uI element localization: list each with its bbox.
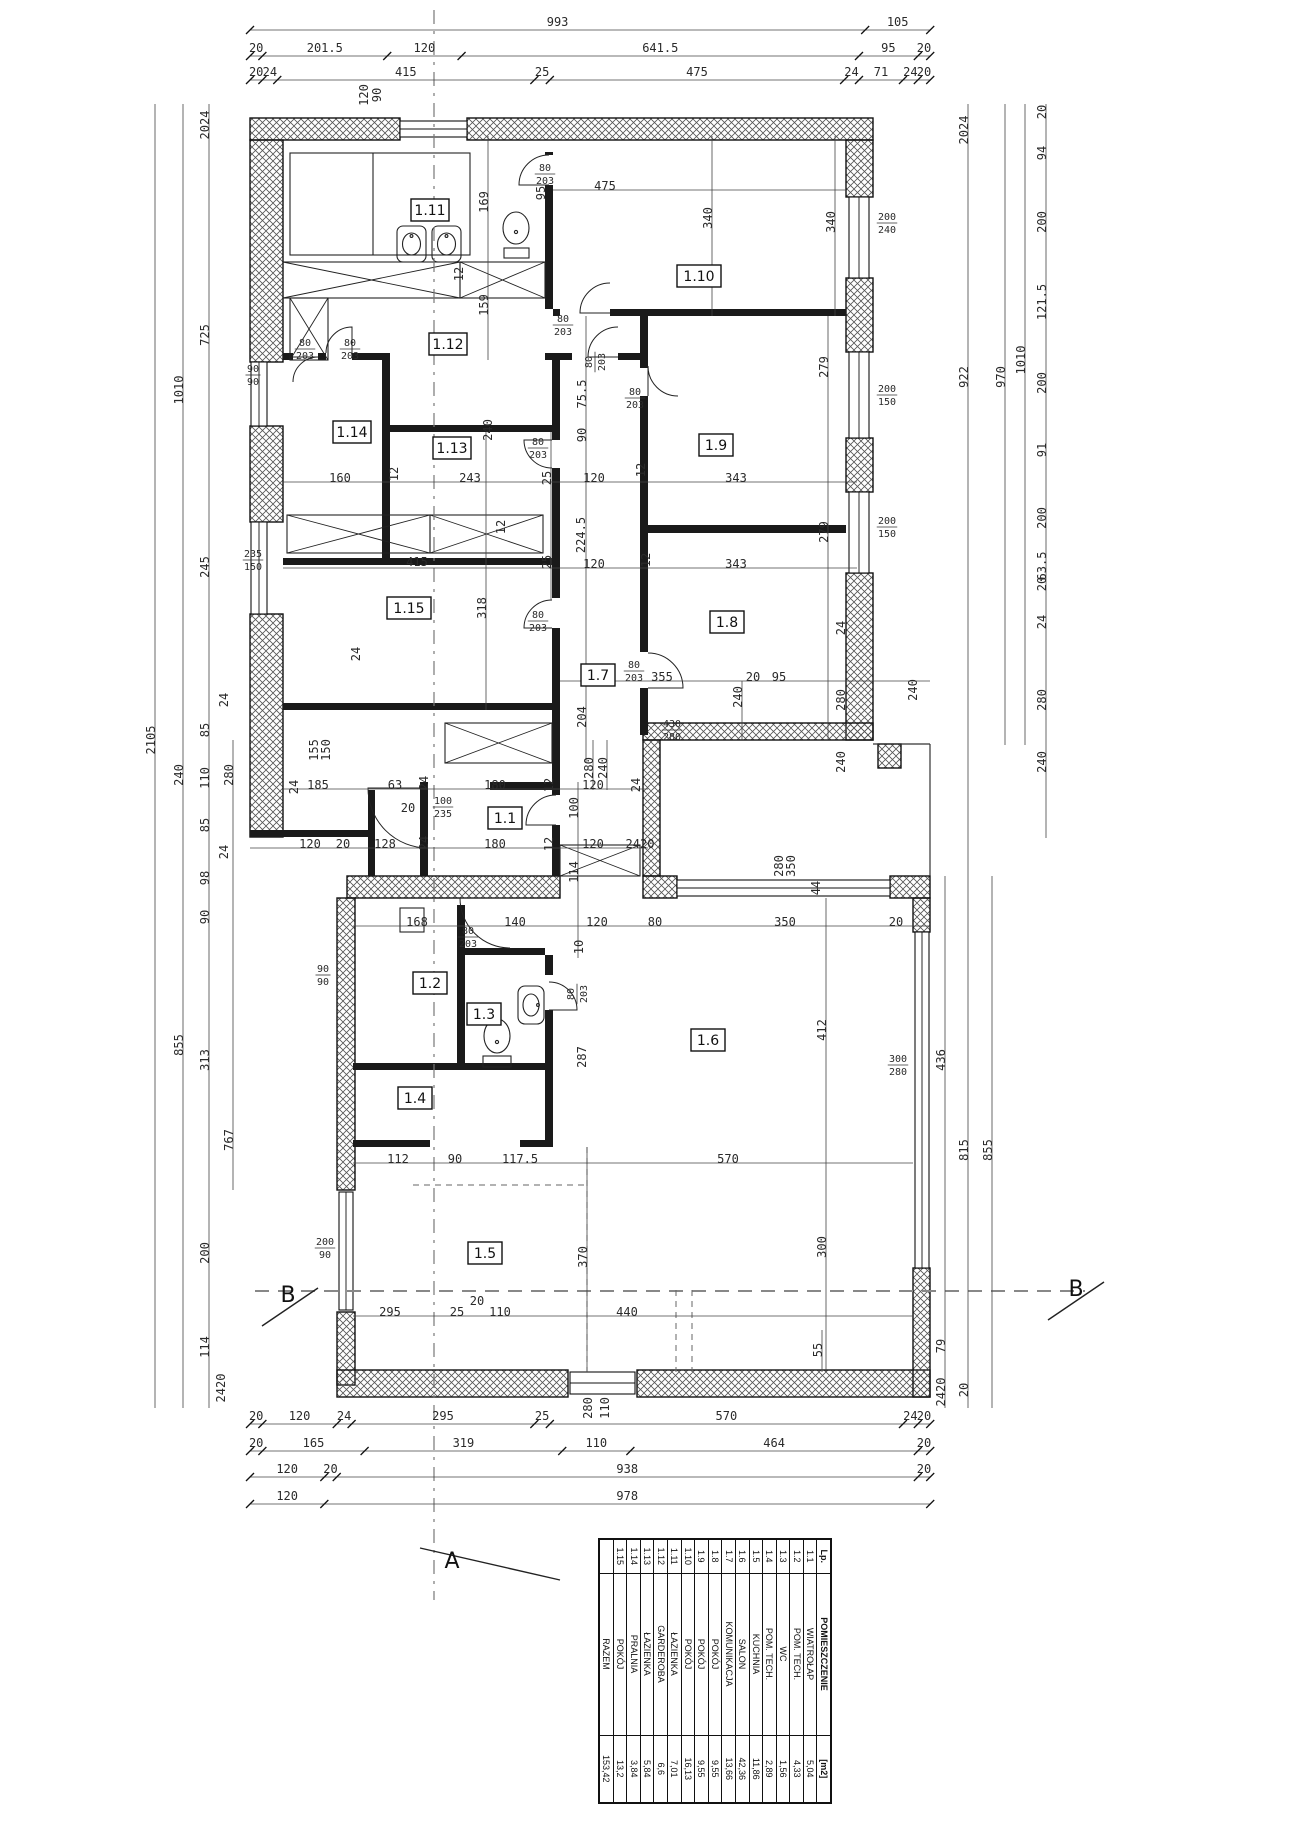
dim-text: 90 xyxy=(575,428,589,442)
exterior-wall xyxy=(643,876,677,898)
dim-text: 90 xyxy=(198,910,212,924)
svg-text:150: 150 xyxy=(244,562,262,573)
schedule-cell: 1.12 xyxy=(654,1539,668,1573)
svg-text:1.2: 1.2 xyxy=(419,976,441,992)
dim-text: 120 xyxy=(276,1462,298,1476)
exterior-wall xyxy=(913,898,930,932)
svg-text:1.13: 1.13 xyxy=(436,441,467,457)
exterior-wall xyxy=(250,426,283,522)
wardrobe-box xyxy=(287,515,430,553)
schedule-cell: ŁAZIENKA xyxy=(640,1573,654,1735)
svg-text:280: 280 xyxy=(889,1067,907,1078)
window-icon xyxy=(339,1192,353,1310)
svg-text:1.14: 1.14 xyxy=(336,425,367,441)
dim-text: 343 xyxy=(725,471,747,485)
svg-text:280: 280 xyxy=(663,732,681,743)
section-markers: ABB xyxy=(262,1277,1104,1580)
exterior-wall xyxy=(890,876,930,898)
schedule-cell: POM. TECH. xyxy=(763,1573,777,1735)
dim-text: 63.5 xyxy=(1035,552,1049,581)
dim-text: 24 xyxy=(903,1409,917,1423)
dim-text: 343 xyxy=(725,557,747,571)
dim-text: 280 xyxy=(581,1397,595,1419)
interior-wall xyxy=(353,1140,430,1147)
schedule-cell: 7,01 xyxy=(668,1735,682,1803)
schedule-cell: 153,42 xyxy=(599,1735,613,1803)
svg-text:203: 203 xyxy=(529,623,547,634)
dim-text: 121.5 xyxy=(1035,284,1049,320)
svg-text:80: 80 xyxy=(557,314,569,325)
schedule-cell: 1.2 xyxy=(790,1539,804,1573)
section-marker-b: B xyxy=(262,1283,318,1326)
svg-text:80: 80 xyxy=(344,338,356,349)
dim-text: 200 xyxy=(1035,507,1049,529)
schedule-cell: 1.11 xyxy=(668,1539,682,1573)
dim-text: 169 xyxy=(477,191,491,213)
window-icon xyxy=(849,492,869,573)
dim-text: 280 xyxy=(582,757,596,779)
interior-wall xyxy=(283,703,560,710)
window-icon xyxy=(849,197,869,278)
svg-text:1.5: 1.5 xyxy=(474,1246,496,1262)
svg-text:203: 203 xyxy=(459,939,477,950)
exterior-wall xyxy=(337,898,355,1190)
interior-wall xyxy=(545,1063,553,1147)
dim-text: 63 xyxy=(388,778,402,792)
schedule-cell: 1.5 xyxy=(749,1539,763,1573)
dim-text: 570 xyxy=(716,1409,738,1423)
dim-text: 117.5 xyxy=(502,1152,538,1166)
dim-text: 20 xyxy=(470,1294,484,1308)
dim-text: 2024 xyxy=(957,116,971,145)
dim-text: 20 xyxy=(917,1462,931,1476)
dim-text: 105 xyxy=(887,15,909,29)
dim-text: 287 xyxy=(575,1046,589,1068)
svg-text:1.3: 1.3 xyxy=(473,1007,495,1023)
room-label-1.3: 1.3 xyxy=(467,1003,501,1025)
schedule-cell: GARDEROBA xyxy=(654,1573,668,1735)
interior-wall xyxy=(250,830,375,837)
room-schedule-table: Lp.POMIESZCZENIE[m2]1.1WIATROŁAP5,041.2P… xyxy=(598,1538,832,1802)
dim-text: 280 xyxy=(834,689,848,711)
size-fraction-label: 80203 xyxy=(528,437,549,461)
dim-text: 85 xyxy=(198,723,212,737)
svg-text:150: 150 xyxy=(878,529,896,540)
dim-text: 20 xyxy=(323,1462,337,1476)
room-label-1.9: 1.9 xyxy=(699,434,733,456)
size-fraction-label: 80203 xyxy=(340,338,361,362)
svg-text:1.10: 1.10 xyxy=(683,269,714,285)
room-label-1.2: 1.2 xyxy=(413,972,447,994)
dim-text: 85 xyxy=(198,818,212,832)
exterior-wall xyxy=(846,140,873,197)
svg-text:203: 203 xyxy=(296,351,314,362)
dim-text: 641.5 xyxy=(642,41,678,55)
dim-text: 279 xyxy=(817,356,831,378)
svg-text:203: 203 xyxy=(536,176,554,187)
schedule-cell: WC xyxy=(776,1573,790,1735)
size-fraction-label: 80203 xyxy=(528,610,549,634)
svg-text:200: 200 xyxy=(316,1237,334,1248)
dim-text: 110 xyxy=(489,1305,511,1319)
dim-text: 240 xyxy=(906,679,920,701)
dim-text: 94 xyxy=(1035,146,1049,160)
dim-text: 2024 xyxy=(198,111,212,140)
dim-text: 24 xyxy=(287,780,301,794)
svg-text:1.9: 1.9 xyxy=(705,438,727,454)
door-arc xyxy=(648,366,678,396)
dim-text: 20 xyxy=(249,1409,263,1423)
room-label-1.10: 1.10 xyxy=(677,265,721,287)
svg-text:100: 100 xyxy=(434,796,452,807)
schedule-cell: 11,86 xyxy=(749,1735,763,1803)
dim-text: 91 xyxy=(1035,443,1049,457)
dim-text: 24 xyxy=(217,845,231,859)
dim-text: 128 xyxy=(374,837,396,851)
dim-text: 922 xyxy=(957,366,971,388)
interior-wall xyxy=(640,316,648,368)
dim-text: 240 xyxy=(481,419,495,441)
size-fraction-label: 20090 xyxy=(315,1237,336,1261)
svg-text:203: 203 xyxy=(626,400,644,411)
dim-text: 90 xyxy=(448,1152,462,1166)
schedule-cell: 9,55 xyxy=(708,1735,722,1803)
schedule-cell: 1.14 xyxy=(627,1539,641,1573)
wardrobe-box xyxy=(445,723,552,763)
dim-text: 2420 xyxy=(934,1378,948,1407)
door-arc xyxy=(580,283,610,313)
schedule-header-cell: POMIESZCZENIE xyxy=(817,1573,831,1735)
dim-text: 570 xyxy=(717,1152,739,1166)
dim-text: 110 xyxy=(598,1397,612,1419)
dim-text: 415 xyxy=(395,65,417,79)
dim-text: 24 xyxy=(263,65,277,79)
dim-text: 20 xyxy=(957,1383,971,1397)
dim-text: 20 xyxy=(917,65,931,79)
dim-text: 114 xyxy=(567,861,581,883)
dim-text: 280 xyxy=(222,764,236,786)
dim-text: 340 xyxy=(701,207,715,229)
dim-text: 2420 xyxy=(214,1374,228,1403)
dim-text: 25 xyxy=(535,1409,549,1423)
svg-text:203: 203 xyxy=(579,985,590,1003)
svg-text:200: 200 xyxy=(878,384,896,395)
dim-text: 75.5 xyxy=(575,380,589,409)
dim-text: 355 xyxy=(651,670,673,684)
room-label-1.14: 1.14 xyxy=(333,421,371,443)
dim-text: 295 xyxy=(432,1409,454,1423)
schedule-cell: 1.6 xyxy=(735,1539,749,1573)
exterior-wall xyxy=(643,740,660,876)
dim-text: 120 xyxy=(582,837,604,851)
room-label-1.8: 1.8 xyxy=(710,611,744,633)
dim-text: 25 xyxy=(535,65,549,79)
dim-text: 20 xyxy=(1035,577,1049,591)
dim-text: 295 xyxy=(379,1305,401,1319)
room-label-1.4: 1.4 xyxy=(398,1087,432,1109)
dim-text: 24 xyxy=(834,621,848,635)
interior-wall xyxy=(552,628,560,710)
dim-text: 855 xyxy=(172,1034,186,1056)
dim-text: 180 xyxy=(484,778,506,792)
dim-text: 464 xyxy=(763,1436,785,1450)
svg-text:1.6: 1.6 xyxy=(697,1033,719,1049)
svg-text:B: B xyxy=(280,1283,295,1308)
schedule-cell: 1.4 xyxy=(763,1539,777,1573)
dim-text: 20 xyxy=(917,1436,931,1450)
size-fraction-label: 9090 xyxy=(316,964,331,988)
dim-text: 79 xyxy=(934,1339,948,1353)
exterior-wall xyxy=(637,1370,930,1397)
dim-text: 20 xyxy=(746,670,760,684)
exterior-wall xyxy=(250,614,283,837)
schedule-cell: 1.10 xyxy=(681,1539,695,1573)
dim-text: 20 xyxy=(401,801,415,815)
dim-text: 95 xyxy=(772,670,786,684)
dim-text: 1010 xyxy=(172,376,186,405)
schedule-cell: 3,84 xyxy=(627,1735,641,1803)
room-label-1.5: 1.5 xyxy=(468,1242,502,1264)
schedule-cell: POM. TECH. xyxy=(790,1573,804,1735)
dim-text: 855 xyxy=(981,1139,995,1161)
schedule-header-cell: [m2] xyxy=(817,1735,831,1803)
schedule-cell: 1.9 xyxy=(695,1539,709,1573)
size-fraction-label: 80203 xyxy=(566,984,590,1005)
size-fraction-label: 80203 xyxy=(535,163,556,187)
schedule-cell: 5,84 xyxy=(640,1735,654,1803)
dim-text: 24 xyxy=(217,693,231,707)
dim-text: 2420 xyxy=(626,837,655,851)
window-icon xyxy=(915,932,929,1268)
schedule-cell: 13,2 xyxy=(613,1735,627,1803)
dim-text: 725 xyxy=(198,324,212,346)
section-lines xyxy=(255,10,1085,1600)
door-arc xyxy=(588,327,618,357)
dim-text: 120 xyxy=(583,557,605,571)
exterior-wall xyxy=(337,1370,568,1397)
dim-text: 24 xyxy=(629,778,643,792)
room-label-1.15: 1.15 xyxy=(387,597,431,619)
dim-text: 475 xyxy=(686,65,708,79)
dim-text: 20 xyxy=(917,1409,931,1423)
dim-text: 12 xyxy=(639,553,653,567)
toilet-icon xyxy=(503,212,529,258)
dim-text: 185 xyxy=(307,778,329,792)
room-label-1.1: 1.1 xyxy=(488,807,522,829)
exterior-wall xyxy=(846,573,873,740)
dim-text: 767 xyxy=(222,1129,236,1151)
svg-text:80: 80 xyxy=(539,163,551,174)
interior-wall xyxy=(552,360,560,440)
dim-text: 150 xyxy=(319,739,333,761)
schedule-cell: 42,36 xyxy=(735,1735,749,1803)
dim-text: 243 xyxy=(459,471,481,485)
interior-wall xyxy=(283,353,293,360)
size-fraction-label: 80203 xyxy=(295,338,316,362)
svg-text:B: B xyxy=(1068,1277,1083,1302)
schedule-cell: POKÓJ xyxy=(681,1573,695,1735)
dim-text: 120 xyxy=(276,1489,298,1503)
dim-text: 95 xyxy=(881,41,895,55)
schedule-cell: 16,13 xyxy=(681,1735,695,1803)
dim-text: 165 xyxy=(303,1436,325,1450)
schedule-cell: 1.3 xyxy=(776,1539,790,1573)
dim-text: 80 xyxy=(648,915,662,929)
schedule-cell: 1.13 xyxy=(640,1539,654,1573)
exterior-wall xyxy=(846,438,873,492)
dim-text: 370 xyxy=(576,1246,590,1268)
schedule-cell: PRALNIA xyxy=(627,1573,641,1735)
schedule-cell: 1.8 xyxy=(708,1539,722,1573)
sink-icon xyxy=(397,226,426,262)
schedule-cell: POKÓJ xyxy=(695,1573,709,1735)
svg-text:90: 90 xyxy=(317,964,329,975)
floorplan-sheet: 99310520201.5120641.59520202441525475247… xyxy=(0,0,1305,1821)
dim-text: 240 xyxy=(1035,751,1049,773)
svg-text:203: 203 xyxy=(625,673,643,684)
schedule-cell: 5,04 xyxy=(803,1735,817,1803)
dim-text: 120 xyxy=(414,41,436,55)
svg-text:203: 203 xyxy=(554,327,572,338)
interior-wall xyxy=(382,360,390,558)
svg-text:80: 80 xyxy=(532,437,544,448)
svg-text:80: 80 xyxy=(628,660,640,671)
size-fraction-label: 100235 xyxy=(433,796,454,820)
svg-text:235: 235 xyxy=(434,809,452,820)
dim-text: 25 xyxy=(540,555,554,569)
dim-text: 168 xyxy=(406,915,428,929)
schedule-cell xyxy=(599,1539,613,1573)
svg-text:300: 300 xyxy=(889,1054,907,1065)
interior-wall xyxy=(520,1140,545,1147)
dim-text: 280 xyxy=(772,855,786,877)
size-fraction-label: 80203 xyxy=(553,314,574,338)
svg-text:90: 90 xyxy=(247,364,259,375)
kitchen-layout-dashes xyxy=(413,1147,692,1372)
svg-text:80: 80 xyxy=(566,988,577,1000)
svg-text:200: 200 xyxy=(878,212,896,223)
schedule-cell: 1.15 xyxy=(613,1539,627,1573)
svg-text:A: A xyxy=(444,1549,459,1574)
dim-text: 98 xyxy=(198,871,212,885)
sink-icon xyxy=(518,986,544,1024)
schedule-cell: 6,6 xyxy=(654,1735,668,1803)
size-fraction-label: 200240 xyxy=(877,212,898,236)
dimension-lines xyxy=(155,104,1046,1408)
dim-text: 350 xyxy=(774,915,796,929)
dim-text: 24 xyxy=(844,65,858,79)
room-label-1.13: 1.13 xyxy=(433,437,471,459)
interior-wall xyxy=(640,396,648,652)
svg-text:203: 203 xyxy=(597,353,608,371)
sink-icon xyxy=(432,226,461,262)
svg-text:90: 90 xyxy=(319,1250,331,1261)
wardrobe-box xyxy=(460,262,545,298)
dim-text: 120 xyxy=(586,915,608,929)
dim-text: 938 xyxy=(616,1462,638,1476)
section-marker-a: A xyxy=(420,1548,560,1580)
section-marker-b: B xyxy=(1048,1277,1104,1320)
svg-text:240: 240 xyxy=(878,225,896,236)
dim-text: 24 xyxy=(337,1409,351,1423)
door-arc xyxy=(526,795,556,825)
dim-text: 240 xyxy=(172,764,186,786)
dim-text: 279 xyxy=(817,521,831,543)
dim-text: 200 xyxy=(1035,372,1049,394)
interior-wall xyxy=(545,353,572,360)
svg-text:90: 90 xyxy=(317,977,329,988)
dim-text: 204 xyxy=(575,706,589,728)
room-label-1.11: 1.11 xyxy=(411,199,449,221)
interior-wall xyxy=(420,790,428,876)
size-fraction-label: 200150 xyxy=(877,384,898,408)
wardrobe-box xyxy=(430,515,543,553)
schedule-cell: 4,33 xyxy=(790,1735,804,1803)
dim-text: 24 xyxy=(417,776,431,790)
dim-text: 318 xyxy=(475,597,489,619)
dim-text: 978 xyxy=(616,1489,638,1503)
schedule-cell: POKÓJ xyxy=(708,1573,722,1735)
svg-text:80: 80 xyxy=(584,356,595,368)
svg-text:80: 80 xyxy=(299,338,311,349)
schedule-cell: SALON xyxy=(735,1573,749,1735)
interior-wall xyxy=(640,688,648,735)
dim-text: 140 xyxy=(504,915,526,929)
schedule-cell: 9,55 xyxy=(695,1735,709,1803)
toilet-icon xyxy=(483,1019,511,1067)
room-label-1.6: 1.6 xyxy=(691,1029,725,1051)
interior-wall xyxy=(353,1063,545,1070)
schedule-cell: 1.7 xyxy=(722,1539,736,1573)
dim-text: 100 xyxy=(567,797,581,819)
dim-text: 240 xyxy=(834,751,848,773)
schedule-cell: KOMUNIKACJA xyxy=(722,1573,736,1735)
dim-text: 120 xyxy=(289,1409,311,1423)
schedule-cell: RAZEM xyxy=(599,1573,613,1735)
window-icon xyxy=(849,352,869,438)
dim-text: 201.5 xyxy=(307,41,343,55)
dim-text: 1010 xyxy=(1014,346,1028,375)
dim-text: 970 xyxy=(994,366,1008,388)
svg-text:203: 203 xyxy=(529,450,547,461)
exterior-wall xyxy=(846,278,873,352)
schedule-cell: POKÓJ xyxy=(613,1573,627,1735)
dim-text: 44 xyxy=(809,881,823,895)
dim-text: 319 xyxy=(453,1436,475,1450)
dim-text: 10 xyxy=(572,940,586,954)
dim-text: 440 xyxy=(616,1305,638,1319)
dim-text: 55 xyxy=(811,1343,825,1357)
dim-text: 114 xyxy=(198,1336,212,1358)
dim-text: 240 xyxy=(596,757,610,779)
schedule-cell: ŁAZIENKA xyxy=(668,1573,682,1735)
dim-text: 25 xyxy=(540,471,554,485)
window-icon xyxy=(677,880,890,896)
dim-text: 280 xyxy=(1035,689,1049,711)
dim-text: 120 xyxy=(582,778,604,792)
dim-text: 20 xyxy=(889,915,903,929)
dim-text: 12 xyxy=(542,837,556,851)
svg-text:235: 235 xyxy=(244,549,262,560)
dim-text: 240 xyxy=(731,686,745,708)
dim-text: 12 xyxy=(634,463,648,477)
dim-text: 12 xyxy=(542,778,556,792)
dim-text: 20 xyxy=(249,1436,263,1450)
dim-text: 95 xyxy=(534,186,548,200)
schedule-cell: 1.1 xyxy=(803,1539,817,1573)
dim-text: 25 xyxy=(450,1305,464,1319)
dim-text: 120 xyxy=(299,837,321,851)
